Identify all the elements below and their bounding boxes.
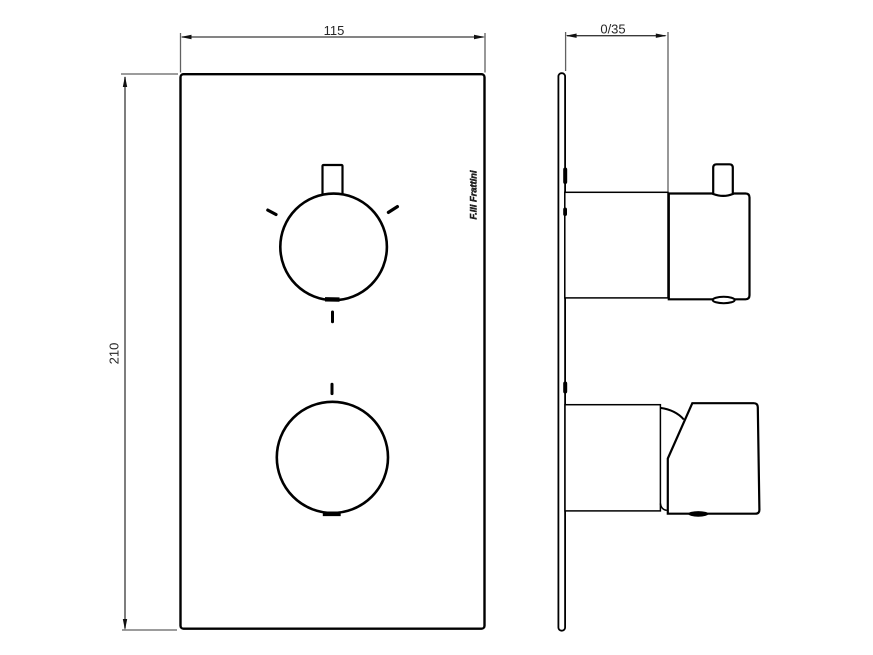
svg-text:F.lli Frattini: F.lli Frattini xyxy=(468,170,478,219)
svg-text:0/35: 0/35 xyxy=(600,22,625,37)
svg-text:210: 210 xyxy=(107,343,122,365)
svg-text:115: 115 xyxy=(324,23,345,38)
